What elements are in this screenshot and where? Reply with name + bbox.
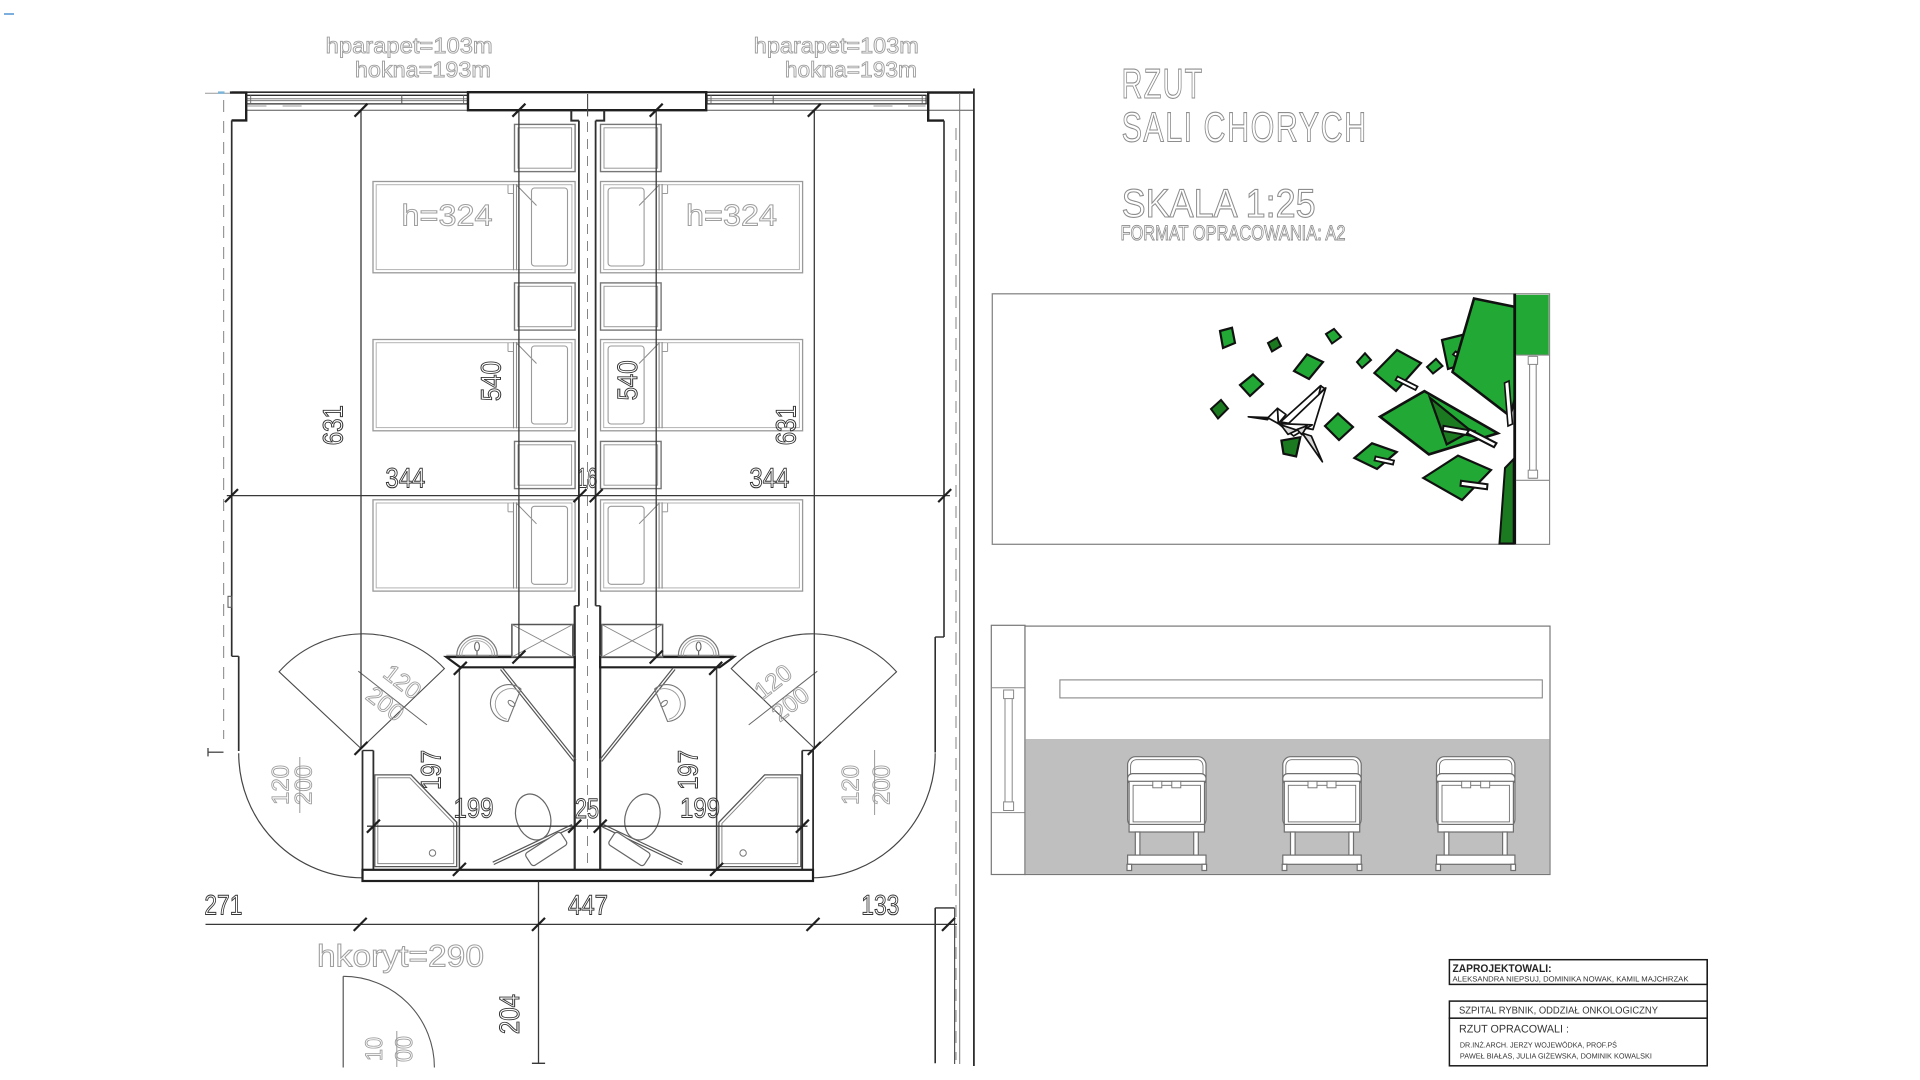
svg-text:h=324: h=324: [686, 200, 777, 233]
svg-text:271: 271: [204, 890, 242, 921]
svg-text:631: 631: [770, 405, 801, 445]
svg-text:DR.INŻ.ARCH. JERZY WOJEWÓDKA,: DR.INŻ.ARCH. JERZY WOJEWÓDKA, PROF.PŚ: [1460, 1041, 1617, 1050]
svg-text:25: 25: [575, 793, 599, 824]
svg-text:199: 199: [454, 793, 494, 824]
svg-text:120: 120: [838, 765, 865, 805]
svg-text:hokna=193m: hokna=193m: [355, 57, 491, 82]
svg-text:200: 200: [291, 765, 318, 805]
svg-text:540: 540: [612, 360, 643, 400]
svg-text:199: 199: [680, 793, 720, 824]
svg-text:hokna=193m: hokna=193m: [785, 57, 917, 82]
svg-text:204: 204: [494, 994, 525, 1034]
svg-text:10: 10: [361, 1037, 388, 1061]
svg-text:SALI CHORYCH: SALI CHORYCH: [1122, 104, 1368, 151]
svg-text:SKALA 1:25: SKALA 1:25: [1122, 182, 1316, 226]
svg-text:hparapet=103m: hparapet=103m: [754, 33, 919, 58]
svg-text:h=324: h=324: [402, 200, 493, 233]
svg-text:447: 447: [568, 890, 608, 921]
svg-text:ZAPROJEKTOWALI:: ZAPROJEKTOWALI:: [1453, 963, 1552, 975]
svg-text:16: 16: [577, 463, 597, 494]
svg-text:197: 197: [673, 750, 704, 790]
svg-text:540: 540: [476, 361, 507, 401]
svg-text:133: 133: [861, 890, 899, 921]
svg-text:PAWEŁ BIAŁAS, JULIA GIŻEWSKA,: PAWEŁ BIAŁAS, JULIA GIŻEWSKA, DOMINIK KO…: [1460, 1052, 1652, 1061]
svg-text:RZUT OPRACOWALI :: RZUT OPRACOWALI :: [1459, 1024, 1569, 1036]
svg-text:344: 344: [385, 463, 425, 494]
svg-text:hkoryt=290: hkoryt=290: [317, 939, 484, 974]
svg-text:hparapet=103m: hparapet=103m: [326, 33, 493, 58]
svg-text:631: 631: [317, 405, 348, 445]
svg-text:00: 00: [391, 1036, 418, 1062]
svg-text:SZPITAL RYBNIK, ODDZIAŁ ONKOLO: SZPITAL RYBNIK, ODDZIAŁ ONKOLOGICZNY: [1459, 1006, 1658, 1017]
svg-text:ALEKSANDRA NIEPSUJ, DOMINIKA N: ALEKSANDRA NIEPSUJ, DOMINIKA NOWAK, KAMI…: [1453, 975, 1689, 984]
svg-text:344: 344: [749, 463, 789, 494]
svg-text:FORMAT OPRACOWANIA: A2: FORMAT OPRACOWANIA: A2: [1121, 222, 1346, 245]
svg-text:200: 200: [869, 765, 896, 805]
svg-text:RZUT: RZUT: [1122, 60, 1204, 107]
svg-text:197: 197: [416, 750, 447, 790]
